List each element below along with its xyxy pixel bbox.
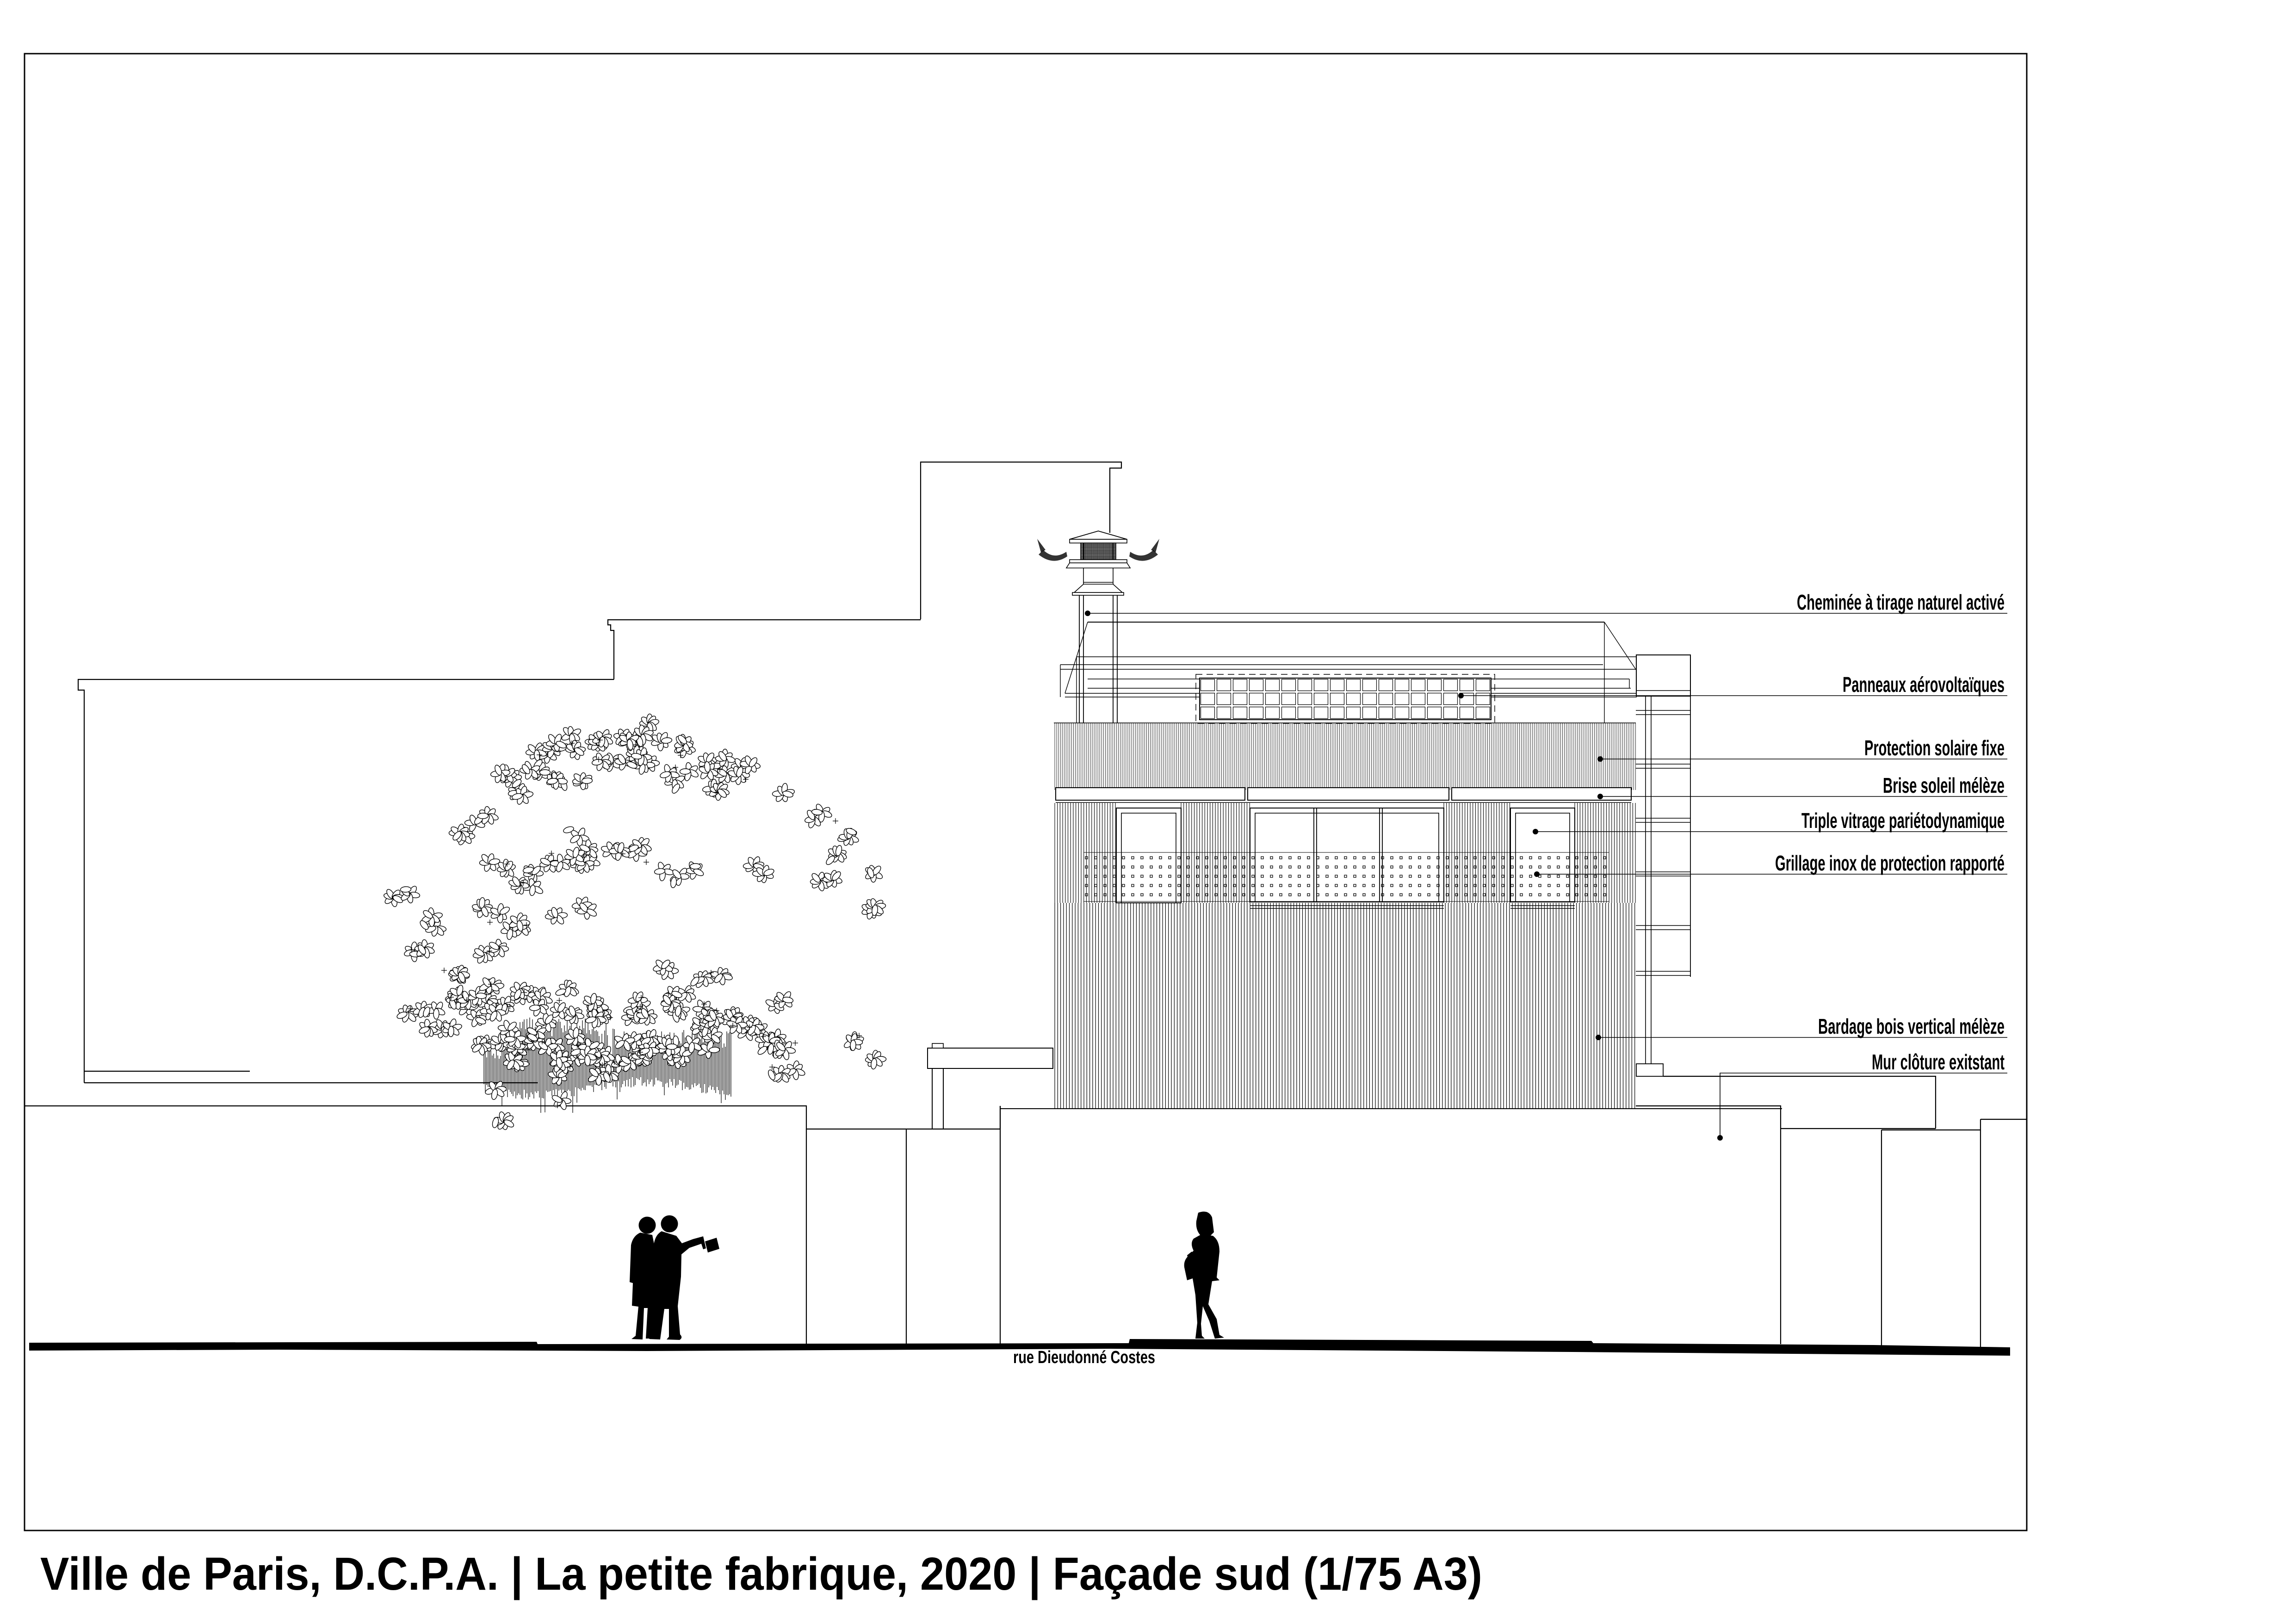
svg-text:rue Dieudonné Costes: rue Dieudonné Costes	[1013, 1348, 1155, 1367]
svg-text:Mur clôture exitstant: Mur clôture exitstant	[1872, 1050, 2005, 1074]
svg-text:Triple vitrage pariétodynamiqu: Triple vitrage pariétodynamique	[1801, 808, 2005, 833]
svg-text:Bardage bois vertical mélèze: Bardage bois vertical mélèze	[1818, 1014, 2005, 1038]
svg-text:Ville de Paris, D.C.P.A. | La: Ville de Paris, D.C.P.A. | La petite fab…	[40, 1548, 1482, 1600]
svg-text:Cheminée à tirage naturel acti: Cheminée à tirage naturel activé	[1797, 590, 2005, 614]
svg-text:Brise soleil mélèze: Brise soleil mélèze	[1883, 773, 2005, 797]
svg-text:Protection solaire fixe: Protection solaire fixe	[1864, 736, 2005, 760]
svg-text:Grillage inox de protection ra: Grillage inox de protection rapporté	[1775, 851, 2005, 875]
svg-text:Panneaux aérovoltaïques: Panneaux aérovoltaïques	[1843, 673, 2005, 697]
